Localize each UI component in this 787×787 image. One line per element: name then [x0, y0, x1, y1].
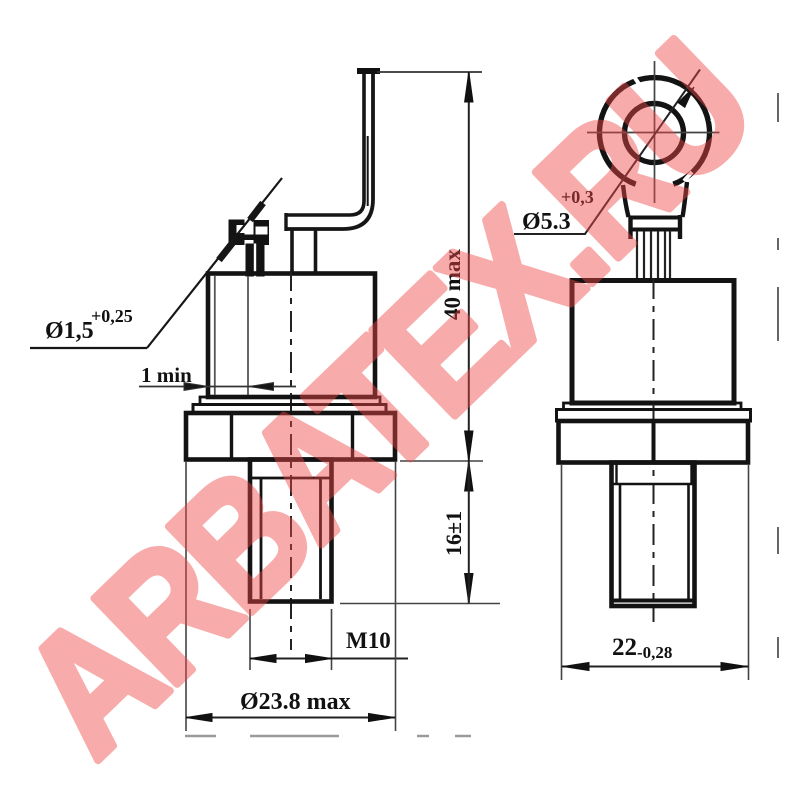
svg-text:ARBATEX.RU: ARBATEX.RU: [0, 10, 786, 787]
svg-text:22: 22: [612, 634, 637, 661]
svg-text:-0,28: -0,28: [637, 643, 672, 662]
svg-text:Ø23.8 max: Ø23.8 max: [240, 689, 351, 715]
svg-text:+0,25: +0,25: [91, 306, 133, 326]
svg-text:16±1: 16±1: [441, 511, 466, 556]
svg-text:M10: M10: [346, 628, 391, 653]
svg-text:Ø1,5: Ø1,5: [45, 318, 94, 344]
